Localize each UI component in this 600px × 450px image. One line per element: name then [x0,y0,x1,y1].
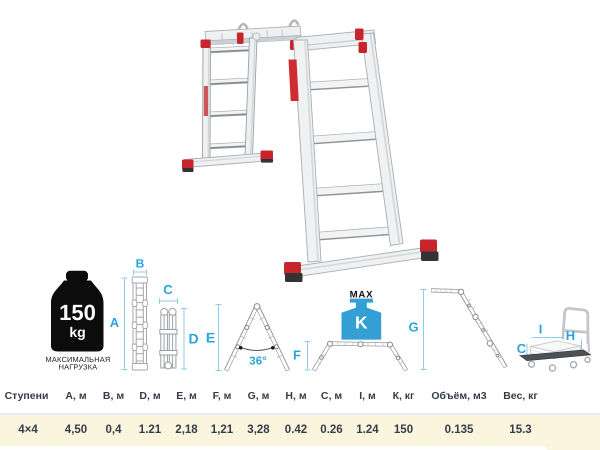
svg-text:G: G [408,320,418,335]
svg-text:kg: kg [69,324,85,340]
svg-text:I: I [539,322,543,337]
svg-text:E: E [206,330,215,346]
svg-text:K: K [355,313,368,333]
svg-text:F: F [293,348,301,363]
svg-text:B: B [136,257,145,271]
svg-text:150: 150 [59,300,96,325]
svg-text:C: C [163,282,173,297]
svg-text:36°: 36° [249,356,267,368]
svg-text:НАГРУЗКА: НАГРУЗКА [59,362,98,371]
svg-text:C: C [517,341,527,356]
svg-text:A: A [110,315,120,330]
svg-text:H: H [566,328,575,343]
svg-text:D: D [188,331,198,347]
